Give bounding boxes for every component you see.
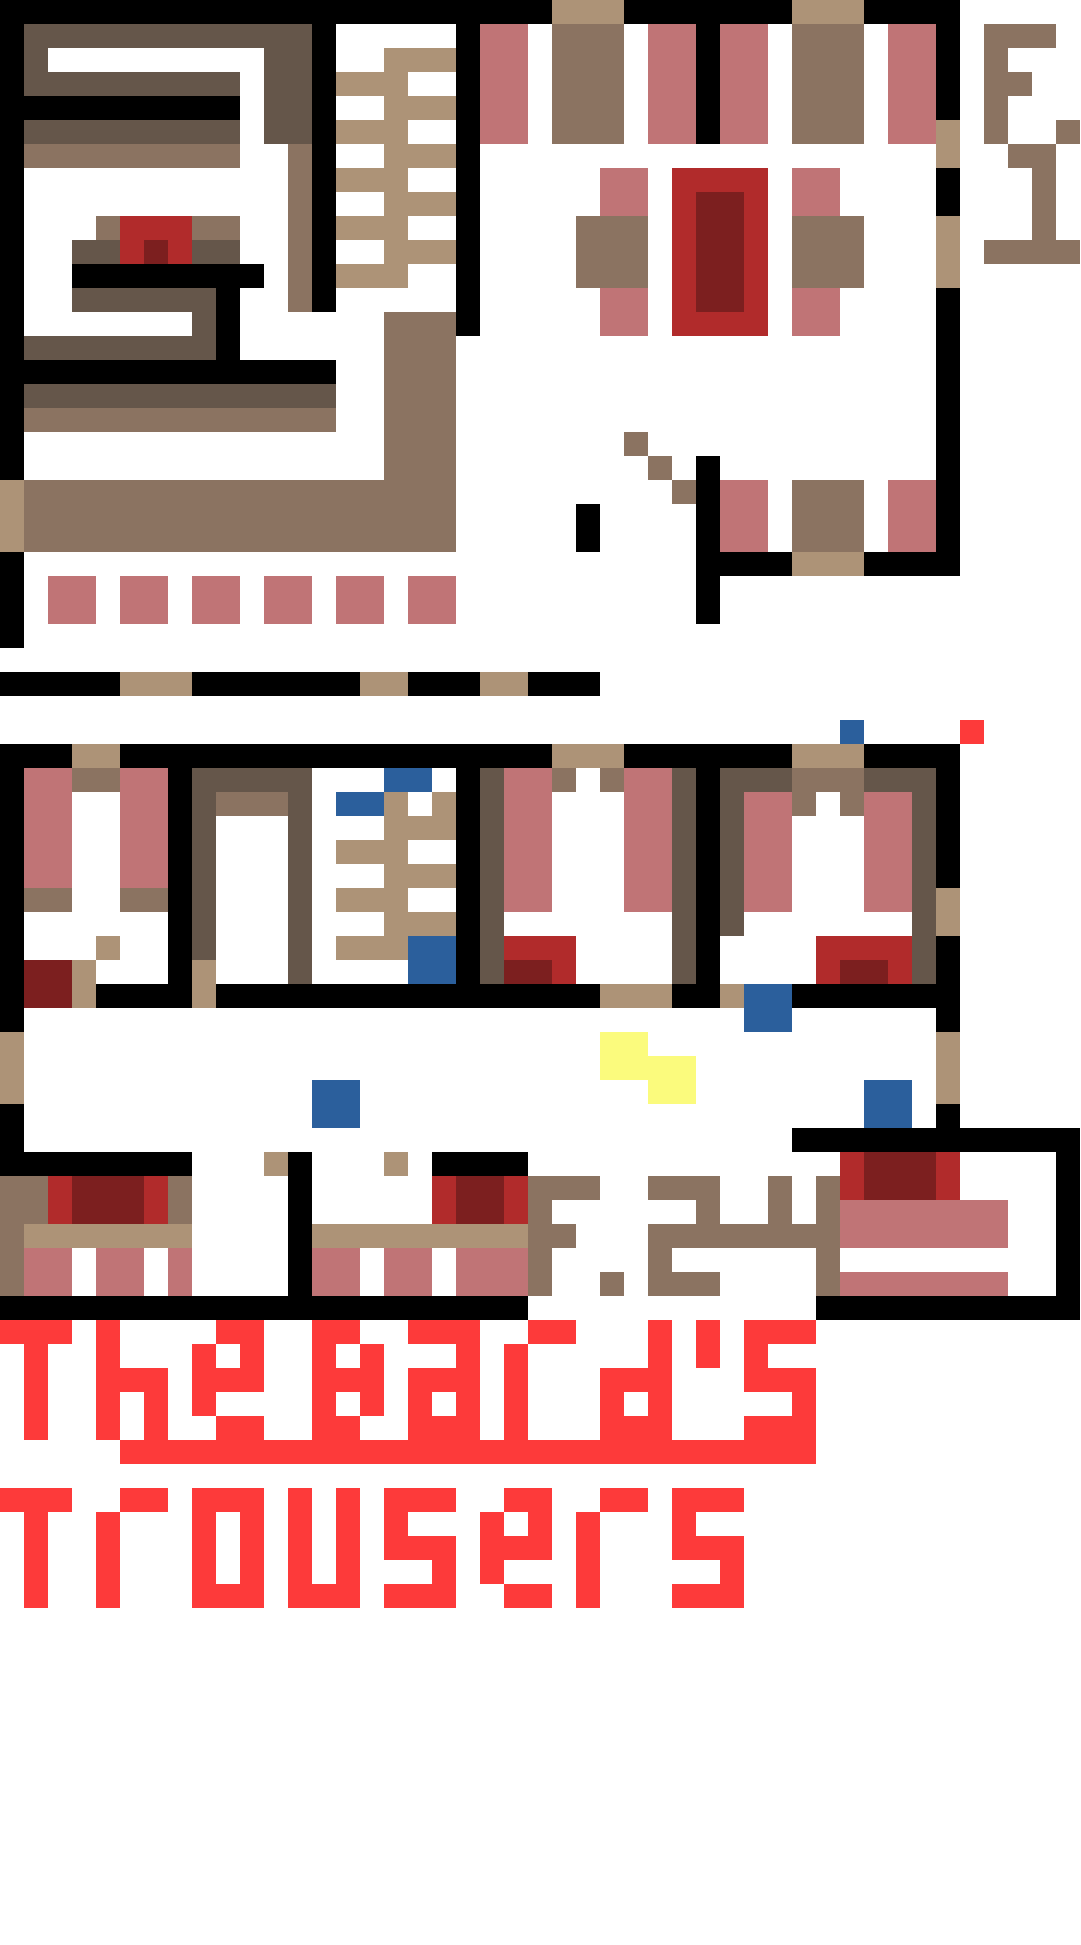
tavern-map: F. 1 F.2-4 The Bard's Trowsers [0, 0, 1081, 1945]
pixel-floorplan-canvas [0, 0, 1081, 1945]
